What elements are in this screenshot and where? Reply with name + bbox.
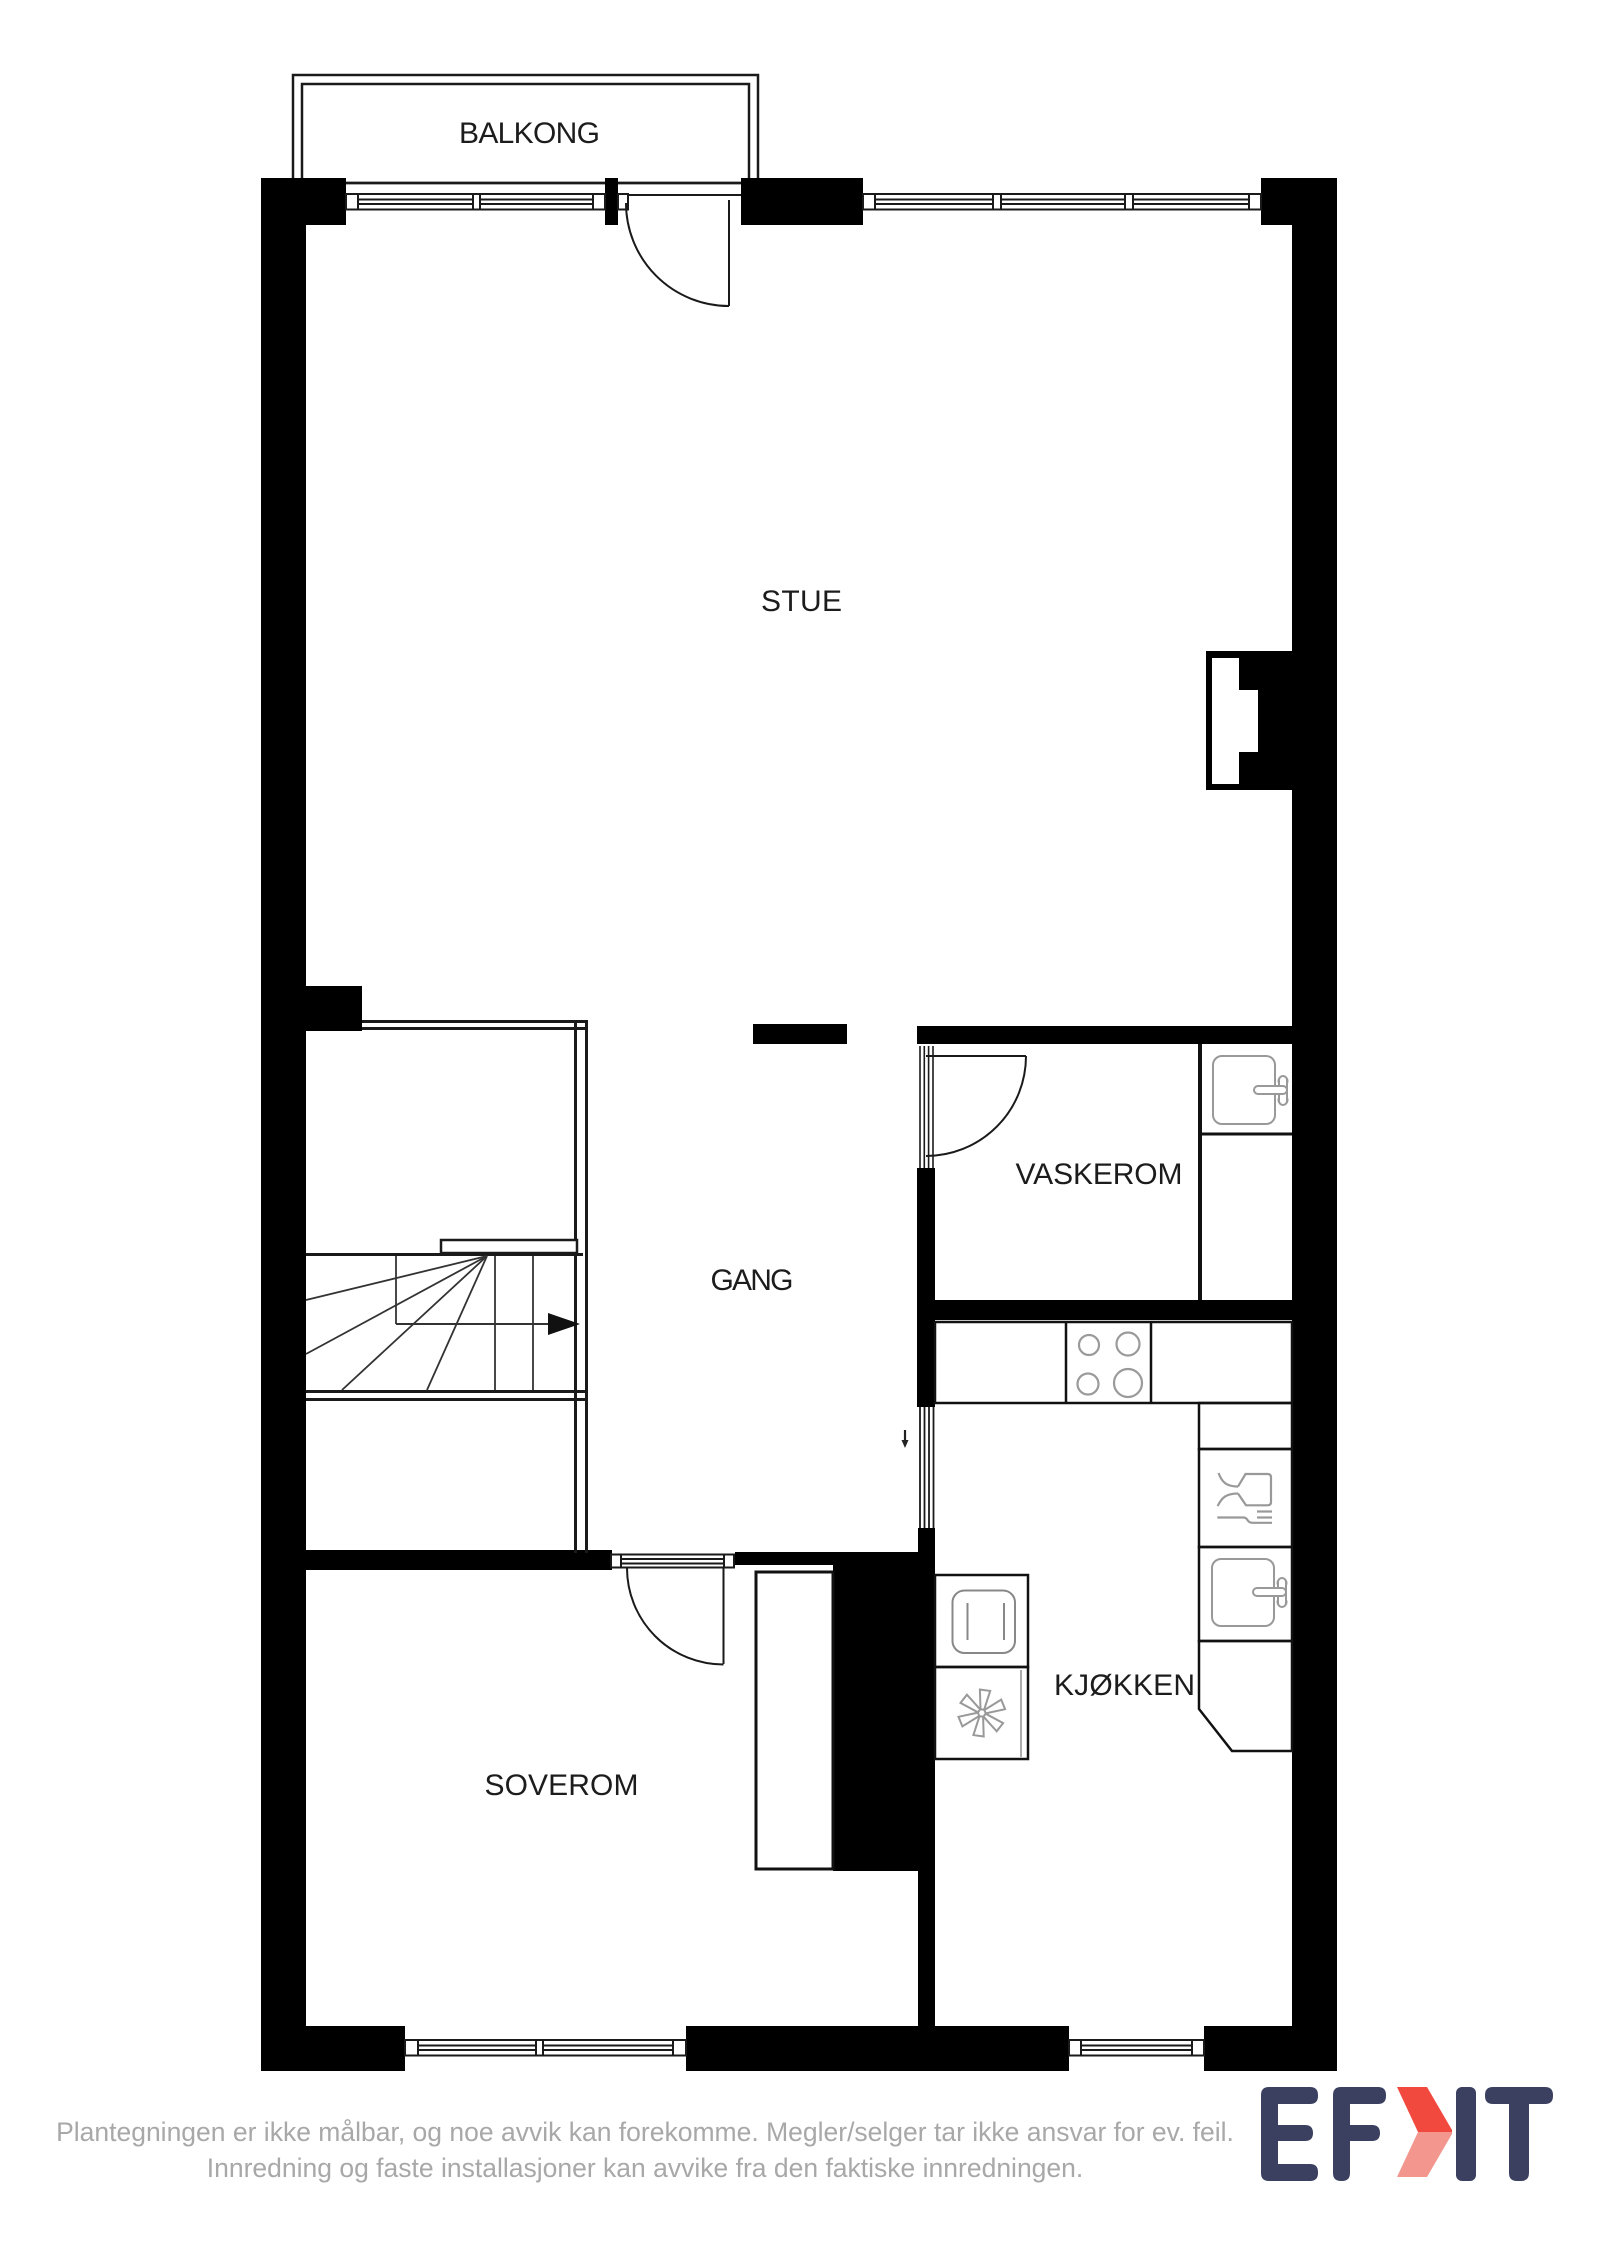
svg-text:Innredning og faste installasj: Innredning og faste installasjoner kan a…	[207, 2153, 1084, 2183]
svg-text:STUE: STUE	[761, 585, 842, 618]
svg-text:VASKEROM: VASKEROM	[1016, 1158, 1183, 1191]
svg-text:GANG: GANG	[711, 1264, 794, 1297]
svg-text:Plantegningen er ikke målbar,: Plantegningen er ikke målbar, og noe avv…	[56, 2117, 1234, 2147]
svg-text:KJØKKEN: KJØKKEN	[1054, 1669, 1195, 1702]
svg-text:BALKONG: BALKONG	[459, 117, 600, 150]
svg-text:SOVEROM: SOVEROM	[485, 1769, 639, 1802]
